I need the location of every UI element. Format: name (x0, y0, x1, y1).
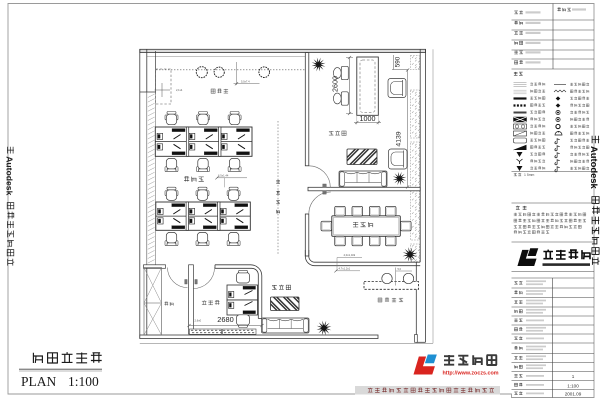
svg-text:4,0x1,0x9: 4,0x1,0x9 (344, 253, 356, 257)
svg-text:6,5x1.44: 6,5x1.44 (218, 173, 229, 177)
svg-text:2,1x4: 2,1x4 (176, 88, 183, 92)
svg-text:http://www.zoczs.com: http://www.zoczs.com (443, 371, 499, 377)
svg-text:Autodesk: Autodesk (5, 156, 15, 195)
svg-text:PLAN: PLAN (21, 374, 57, 389)
svg-text:Autodesk: Autodesk (589, 146, 600, 190)
svg-text:2600: 2600 (331, 76, 340, 92)
svg-text:4139: 4139 (396, 131, 403, 146)
svg-text:1:100: 1:100 (567, 383, 579, 388)
svg-text:1000: 1000 (360, 114, 376, 123)
svg-text:1 5mm: 1 5mm (524, 173, 535, 177)
svg-text:1: 1 (572, 374, 575, 379)
svg-text:1:100: 1:100 (68, 374, 99, 389)
svg-text:4,7x1,2x1: 4,7x1,2x1 (339, 266, 351, 270)
svg-text:5,0: 5,0 (398, 267, 402, 271)
svg-text:2,6x0: 2,6x0 (195, 319, 202, 323)
svg-text:2680: 2680 (217, 315, 233, 324)
svg-text:590: 590 (395, 56, 402, 67)
svg-text:5,0x7.4: 5,0x7.4 (241, 79, 250, 83)
svg-text:2001.09: 2001.09 (565, 392, 582, 397)
